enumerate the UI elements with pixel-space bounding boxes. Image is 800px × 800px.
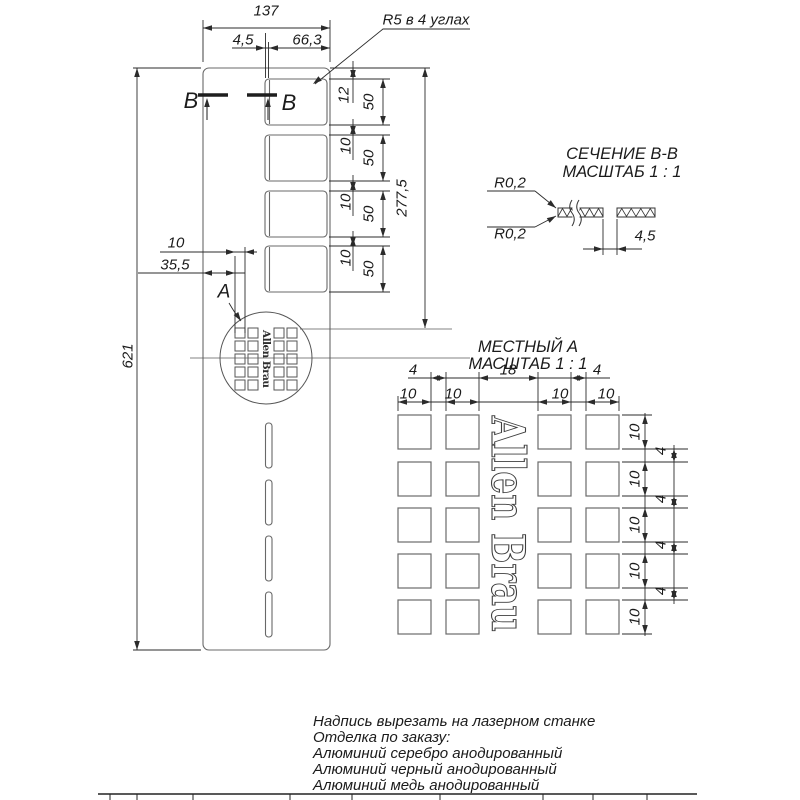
logo-engraving-large: Allen Brau bbox=[481, 415, 535, 632]
note-finish-black: Алюминий черный анодированный bbox=[313, 762, 557, 777]
note-finish-on-order: Отделка по заказу: bbox=[313, 730, 450, 745]
dim-slot-width: 66,3 bbox=[292, 33, 321, 48]
dim-slot-gap-1: 10 bbox=[339, 138, 354, 155]
section-scale: МАСШТАБ 1 : 1 bbox=[563, 164, 682, 181]
detail-letter: A bbox=[218, 283, 231, 302]
section-view-geometry bbox=[558, 200, 655, 226]
dim-col-gap-1: 4 bbox=[409, 363, 417, 378]
dim-col-gap-2: 4 bbox=[593, 363, 601, 378]
dim-row-gap-2: 4 bbox=[654, 495, 669, 503]
dim-slot-gap-3: 10 bbox=[339, 250, 354, 267]
dim-lip: 4,5 bbox=[233, 33, 254, 48]
logo-engraving-small: Allen Brau bbox=[260, 329, 272, 388]
detail-scale: МАСШТАБ 1 : 1 bbox=[469, 356, 588, 373]
dim-grid-square: 10 bbox=[168, 236, 185, 251]
title-block-frame bbox=[98, 794, 697, 800]
dim-square-h-2: 10 bbox=[628, 471, 643, 488]
detail-view-dims bbox=[398, 372, 688, 636]
dim-slot-height-3: 50 bbox=[362, 206, 377, 223]
section-title: СЕЧЕНИЕ В-В bbox=[566, 146, 678, 163]
dim-grid-offset: 35,5 bbox=[160, 258, 189, 273]
dim-row-gap-3: 4 bbox=[654, 541, 669, 549]
dim-top-to-grid: 277,5 bbox=[395, 179, 410, 217]
radius-note-top: R0,2 bbox=[494, 176, 526, 191]
note-laser-engraving: Надпись вырезать на лазерном станке bbox=[313, 714, 595, 729]
dim-row-gap-1: 4 bbox=[654, 447, 669, 455]
dim-square-w-3: 10 bbox=[552, 387, 569, 402]
dim-square-h-1: 10 bbox=[628, 424, 643, 441]
dim-square-h-5: 10 bbox=[628, 609, 643, 626]
dim-section-slot: 4,5 bbox=[635, 229, 656, 244]
dim-square-w-4: 10 bbox=[598, 387, 615, 402]
dim-total-length: 621 bbox=[121, 343, 136, 368]
dimension-arrowheads bbox=[134, 25, 677, 650]
dim-slot-height-2: 50 bbox=[362, 150, 377, 167]
note-finish-silver: Алюминий серебро анодированный bbox=[313, 746, 562, 761]
corner-radius-note: R5 в 4 углах bbox=[383, 13, 470, 28]
detail-title: МЕСТНЫЙ А bbox=[478, 339, 578, 356]
dim-square-w-2: 10 bbox=[445, 387, 462, 402]
engineering-drawing-sheet: Allen Brau bbox=[0, 0, 800, 800]
dim-center-gap: 18 bbox=[500, 363, 517, 378]
dim-slot-gap-2: 10 bbox=[339, 194, 354, 211]
dim-width-total: 137 bbox=[253, 4, 278, 19]
dim-first-slot-offset: 12 bbox=[337, 87, 352, 104]
dim-square-h-3: 10 bbox=[628, 517, 643, 534]
dim-row-gap-4: 4 bbox=[654, 587, 669, 595]
dim-slot-height-4: 50 bbox=[362, 261, 377, 278]
dim-square-w-1: 10 bbox=[400, 387, 417, 402]
section-view-dims bbox=[487, 191, 642, 255]
section-letter-left: B bbox=[184, 90, 199, 112]
note-finish-copper: Алюминий медь анодированный bbox=[313, 778, 539, 793]
section-letter-right: B bbox=[282, 92, 297, 114]
dim-slot-height-1: 50 bbox=[362, 94, 377, 111]
radius-note-bottom: R0,2 bbox=[494, 227, 526, 242]
dim-square-h-4: 10 bbox=[628, 563, 643, 580]
dimension-lines bbox=[133, 20, 470, 650]
